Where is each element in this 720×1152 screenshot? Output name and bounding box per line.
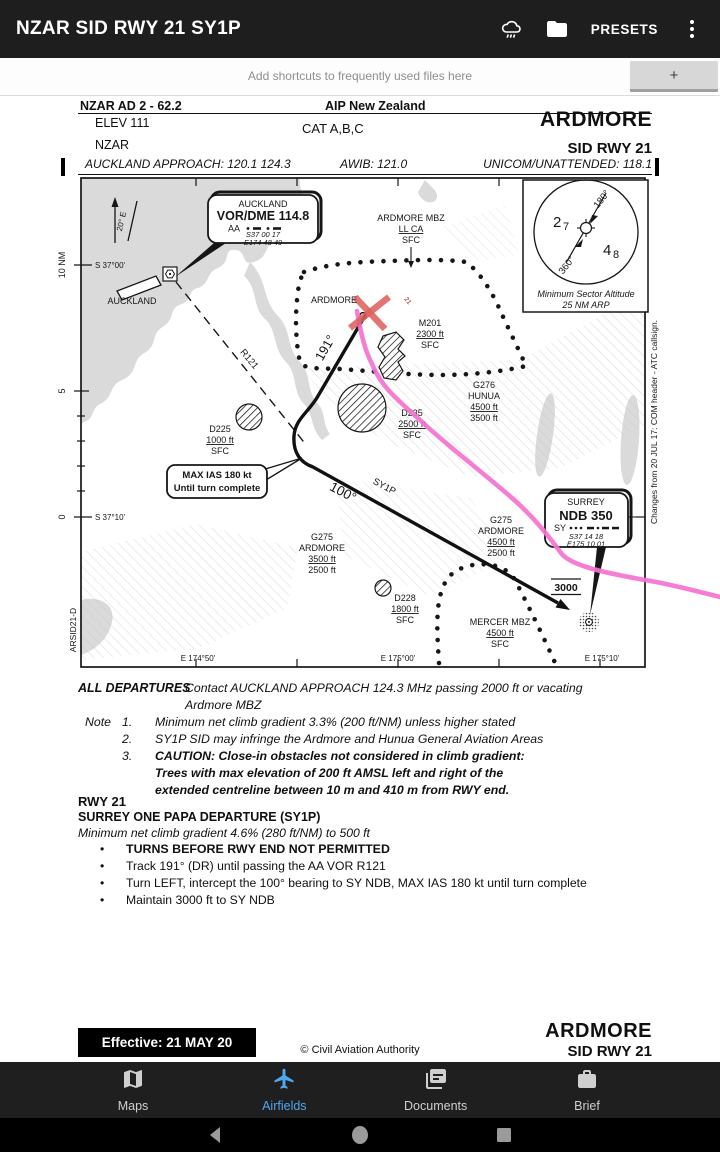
label-g275-west: G275 ARDMORE 3500 ft 2500 ft: [299, 532, 345, 575]
airspace-labels: ARDMORE MBZ LL CA SFC M201 2300 ft SFC G…: [206, 213, 531, 649]
bullet-2-dot: •: [100, 859, 104, 873]
m201-upper: 2300 ft: [416, 329, 444, 339]
g275e-lower: 2500 ft: [487, 548, 515, 558]
briefcase-icon: [575, 1067, 599, 1096]
app-bar: NZAR SID RWY 21 SY1P PRESETS: [0, 0, 720, 58]
ardmore-mbz-name: ARDMORE MBZ: [377, 213, 445, 223]
tab-documents-label: Documents: [404, 1099, 467, 1113]
note-2-num: 2.: [122, 732, 132, 746]
msa-alt-east-main: 4: [603, 242, 611, 259]
ndb-symbol: [579, 612, 599, 632]
tab-maps[interactable]: Maps: [58, 1062, 208, 1118]
lat-label-3710: S 37°10': [95, 513, 126, 522]
max-ias-line2: Until turn complete: [174, 483, 261, 494]
auckland-city-label: AUCKLAND: [107, 296, 157, 306]
bullet-1-text: TURNS BEFORE RWY END NOT PERMITTED: [126, 842, 390, 856]
scale-10nm: 10 NM: [57, 252, 67, 279]
rwy-section-title: RWY 21: [78, 794, 126, 809]
msa-box: 180° 360° 2 7 4 8 Minimum Sector Altitud…: [523, 180, 648, 312]
bottom-nav: Maps Airfields Documents: [0, 1062, 720, 1118]
weather-icon[interactable]: [499, 17, 523, 41]
bullet-3-text: Turn LEFT, intercept the 100° bearing to…: [126, 876, 587, 890]
departure-name: SURREY ONE PAPA DEPARTURE (SY1P): [78, 810, 320, 824]
elevation: ELEV 111: [95, 116, 149, 130]
g276-name: G276: [473, 380, 495, 390]
note-label: Note: [85, 715, 111, 729]
track-100-label: 100°: [327, 479, 359, 505]
ardmore-mbz-upper: LL CA: [399, 224, 424, 234]
label-ardmore-mbz: ARDMORE MBZ LL CA SFC: [377, 213, 445, 268]
g275e-area: ARDMORE: [478, 526, 524, 536]
aip-title: AIP New Zealand: [325, 99, 426, 113]
msa-caption-1: Minimum Sector Altitude: [537, 289, 634, 299]
tab-documents[interactable]: Documents: [361, 1062, 511, 1118]
label-g276: G276 HUNUA 4500 ft 3500 ft: [468, 380, 500, 423]
graticule-ticks: [74, 178, 645, 667]
g275e-name: G275: [490, 515, 512, 525]
bullet-4-text: Maintain 3000 ft to SY NDB: [126, 893, 275, 907]
vor-radial-r121: [176, 282, 307, 446]
m201-lower: SFC: [421, 340, 440, 350]
rwy-designator-mark: 21: [402, 296, 412, 306]
tab-maps-label: Maps: [118, 1099, 149, 1113]
map-icon: [121, 1067, 145, 1096]
mercer-mbz-boundary: [437, 564, 556, 665]
msa-sector-360: 360°: [557, 254, 578, 276]
g275w-area: ARDMORE: [299, 543, 345, 553]
ndb-morse-sy: [570, 527, 619, 530]
android-back-icon[interactable]: [206, 1125, 226, 1145]
track-191-label: 191°: [312, 332, 338, 363]
footer-procedure-title: SID RWY 21: [432, 1043, 652, 1060]
mercer-name: MERCER MBZ: [470, 617, 531, 627]
graticule-labels: S 37°00' S 37°10' E 174°50' E 175°00' E …: [57, 252, 620, 663]
lat-label-3700: S 37°00': [95, 261, 126, 270]
lon-label-17500: E 175°00': [381, 654, 416, 663]
lon-label-17450: E 174°50': [181, 654, 216, 663]
ndb-name: SURREY: [567, 497, 605, 507]
changes-note: Changes from 20 JUL 17: COM header - ATC…: [649, 320, 659, 524]
north-arrow: [112, 197, 138, 243]
d225-name: D225: [209, 424, 231, 434]
vor-ident: VOR/DME 114.8: [217, 209, 309, 223]
icao-code: NZAR: [95, 138, 129, 152]
m201-name: M201: [419, 318, 442, 328]
vor-callout-box: AUCKLAND VOR/DME 114.8 AA S37 00 17 E174…: [175, 192, 321, 277]
airplane-icon: [272, 1067, 296, 1096]
tab-airfields[interactable]: Airfields: [209, 1062, 359, 1118]
footer-airport-name: ARDMORE: [432, 1020, 652, 1043]
chart-frame: [81, 178, 645, 667]
altitude-3000-text: 3000: [554, 582, 578, 594]
freq-approach: AUCKLAND APPROACH: 120.1 124.3: [85, 157, 291, 171]
d225-upper: 1000 ft: [206, 435, 234, 445]
android-home-icon[interactable]: [350, 1125, 370, 1145]
sid-code-label: SY1P: [371, 476, 398, 497]
all-departures-label: ALL DEPARTURES: [78, 681, 191, 695]
vor-code: AA: [228, 224, 240, 234]
tab-brief[interactable]: Brief: [512, 1062, 662, 1118]
change-bar-left: [61, 158, 65, 176]
sid-track-arrowhead: [556, 599, 571, 610]
msa-alt-east-sub: 8: [613, 249, 619, 261]
mercer-upper: 4500 ft: [486, 628, 514, 638]
d228-upper: 1800 ft: [391, 604, 419, 614]
water-areas: [81, 178, 642, 655]
scale-5nm: 5: [57, 388, 67, 393]
g275e-upper: 4500 ft: [487, 537, 515, 547]
d225-lower: SFC: [211, 446, 230, 456]
departure-start-symbol: [360, 313, 367, 320]
radial-label: R121: [237, 347, 260, 371]
label-d235: D235 2500 ft SFC: [398, 408, 426, 440]
note-2-text: SY1P SID may infringe the Ardmore and Hu…: [155, 732, 543, 746]
label-d225: D225 1000 ft SFC: [206, 424, 234, 456]
app-title: NZAR SID RWY 21 SY1P: [16, 18, 499, 40]
msa-sector-180: 180°: [592, 188, 613, 210]
d235-lower: SFC: [403, 430, 422, 440]
max-ias-line1: MAX IAS 180 kt: [182, 470, 252, 481]
g276-upper: 4500 ft: [470, 402, 498, 412]
ndb-lon: E175 10 01: [567, 540, 605, 549]
change-bar-right: [655, 158, 659, 176]
mbz-boundaries: [296, 260, 556, 665]
note-3-line1: CAUTION: Close-in obstacles not consider…: [155, 749, 525, 763]
documents-icon: [424, 1067, 448, 1096]
ardmore-airport-symbol: 21: [350, 296, 413, 329]
app-bar-actions: PRESETS: [499, 17, 704, 41]
sid-chart-graphic: S 37°00' S 37°10' E 174°50' E 175°00' E …: [0, 96, 720, 1062]
ndb-ident: NDB 350: [559, 508, 612, 523]
note-3-line3: extended centreline between 10 m and 410…: [155, 783, 509, 797]
area-d235: [338, 384, 386, 432]
g275w-lower: 2500 ft: [308, 565, 336, 575]
airport-name: ARDMORE: [432, 108, 652, 132]
g275w-name: G275: [311, 532, 333, 542]
ardmore-airport-label: ARDMORE: [311, 295, 357, 305]
vor-lat: S37 00 17: [246, 230, 281, 239]
vor-morse-aa: [247, 227, 281, 230]
mercer-lower: SFC: [491, 639, 510, 649]
vor-symbol: [163, 267, 177, 281]
freq-awib: AWIB: 121.0: [340, 157, 407, 171]
ardmore-mbz-lower: SFC: [402, 235, 421, 245]
folder-icon[interactable]: [545, 17, 569, 41]
bullet-3-dot: •: [100, 876, 104, 890]
variation-label: 20° E: [115, 211, 128, 232]
max-ias-callout: MAX IAS 180 kt Until turn complete: [167, 458, 302, 498]
freq-unicom: UNICOM/UNATTENDED: 118.1: [432, 157, 652, 171]
msa-caption-2: 25 NM ARP: [561, 300, 609, 310]
procedure-title: SID RWY 21: [432, 140, 652, 157]
altitude-3000: 3000: [551, 579, 581, 595]
d228-lower: SFC: [396, 615, 415, 625]
bullet-4-dot: •: [100, 893, 104, 907]
note-3-num: 3.: [122, 749, 132, 763]
area-m201: [378, 332, 405, 380]
scale-0nm: 0: [57, 514, 67, 519]
all-departures-line1: Contact AUCKLAND APPROACH 124.3 MHz pass…: [185, 681, 583, 695]
d235-upper: 2500 ft: [398, 419, 426, 429]
lon-label-17510: E 175°10': [585, 654, 620, 663]
vor-name: AUCKLAND: [238, 199, 288, 209]
d228-name: D228: [394, 593, 416, 603]
msa-arrow-sw: [575, 239, 583, 247]
danger-areas: [236, 332, 405, 596]
gradient-note: Minimum net climb gradient 4.6% (280 ft/…: [78, 826, 370, 840]
freq-rule: [78, 174, 652, 176]
chart-id-label: ARSID21-D: [68, 608, 78, 652]
note-1-num: 1.: [122, 715, 132, 729]
g276-lower: 3500 ft: [470, 413, 498, 423]
ndb-callout-box: SURREY NDB 350 SY S37 14 18 E175 10 01: [545, 490, 645, 615]
label-mercer-mbz: MERCER MBZ 4500 ft SFC: [470, 617, 531, 649]
auckland-runway-symbol: [117, 276, 161, 300]
ndb-code: SY: [554, 523, 566, 533]
label-d228: D228 1800 ft SFC: [391, 593, 419, 625]
android-nav-bar: [0, 1118, 720, 1152]
all-departures-line2: Ardmore MBZ: [185, 698, 262, 712]
terrain-hatching: [81, 205, 645, 660]
overflow-menu-icon[interactable]: [680, 17, 704, 41]
note-1-text: Minimum net climb gradient 3.3% (200 ft/…: [155, 715, 515, 729]
area-d225: [236, 404, 262, 430]
shortcut-hint: Add shortcuts to frequently used files h…: [0, 69, 720, 83]
screen: NZAR SID RWY 21 SY1P PRESETS: [0, 0, 720, 1152]
ardmore-mbz-boundary: [296, 260, 526, 375]
gps-track-line: [357, 311, 720, 597]
bullet-2-text: Track 191° (DR) until passing the AA VOR…: [126, 859, 386, 873]
tab-airfields-label: Airfields: [262, 1099, 306, 1113]
doc-reference: NZAR AD 2 - 62.2: [80, 99, 182, 113]
bullet-1-dot: •: [100, 842, 104, 856]
sid-track: [294, 314, 558, 603]
presets-button[interactable]: PRESETS: [591, 22, 658, 37]
aircraft-category: CAT A,B,C: [302, 121, 364, 136]
ndb-lat: S37 14 18: [569, 532, 604, 541]
android-recents-icon[interactable]: [494, 1125, 514, 1145]
note-3-line2: Trees with max elevation of 200 ft AMSL …: [155, 766, 503, 780]
msa-alt-west-main: 2: [553, 214, 561, 231]
area-d228: [375, 580, 391, 596]
label-m201: M201 2300 ft SFC: [416, 318, 444, 350]
vor-lon: E174 48 49: [244, 238, 283, 247]
label-g275-east: G275 ARDMORE 4500 ft 2500 ft: [478, 515, 524, 558]
add-shortcut-button[interactable]: +: [630, 61, 718, 92]
tab-brief-label: Brief: [574, 1099, 600, 1113]
copyright: © Civil Aviation Authority: [260, 1044, 460, 1056]
chart-document[interactable]: NZAR AD 2 - 62.2 AIP New Zealand ELEV 11…: [0, 96, 720, 1062]
g275w-upper: 3500 ft: [308, 554, 336, 564]
effective-date-badge: Effective: 21 MAY 20: [78, 1028, 256, 1057]
msa-arrow-ne: [590, 215, 598, 224]
d235-name: D235: [401, 408, 423, 418]
shortcut-bar: Add shortcuts to frequently used files h…: [0, 58, 720, 96]
msa-alt-west-sub: 7: [563, 221, 569, 233]
g276-area: HUNUA: [468, 391, 500, 401]
